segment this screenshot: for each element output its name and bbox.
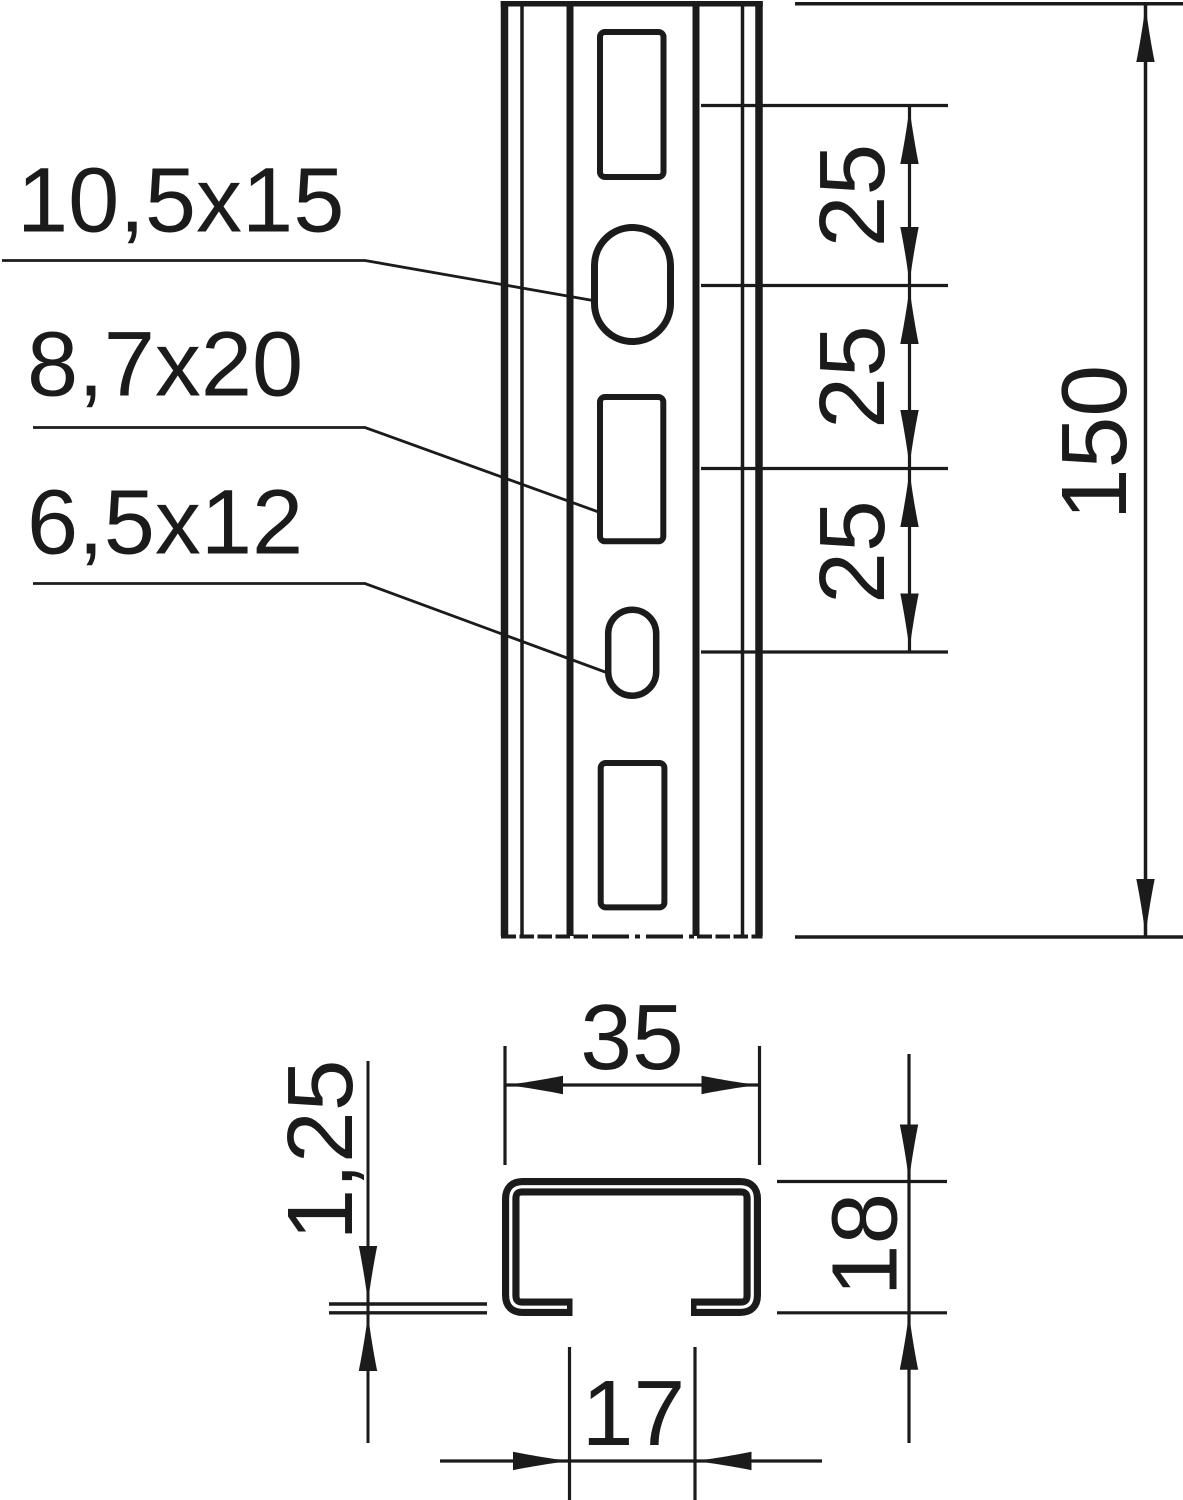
svg-text:1,25: 1,25 bbox=[268, 1059, 372, 1240]
svg-text:35: 35 bbox=[580, 985, 683, 1089]
svg-text:25: 25 bbox=[800, 500, 904, 603]
svg-text:8,7x20: 8,7x20 bbox=[27, 314, 303, 416]
svg-text:25: 25 bbox=[800, 325, 904, 428]
svg-text:10,5x15: 10,5x15 bbox=[17, 150, 344, 252]
svg-text:150: 150 bbox=[1042, 365, 1146, 520]
svg-text:17: 17 bbox=[582, 1361, 685, 1465]
svg-text:25: 25 bbox=[800, 144, 904, 247]
svg-text:18: 18 bbox=[813, 1193, 917, 1296]
svg-text:6,5x12: 6,5x12 bbox=[27, 472, 303, 574]
